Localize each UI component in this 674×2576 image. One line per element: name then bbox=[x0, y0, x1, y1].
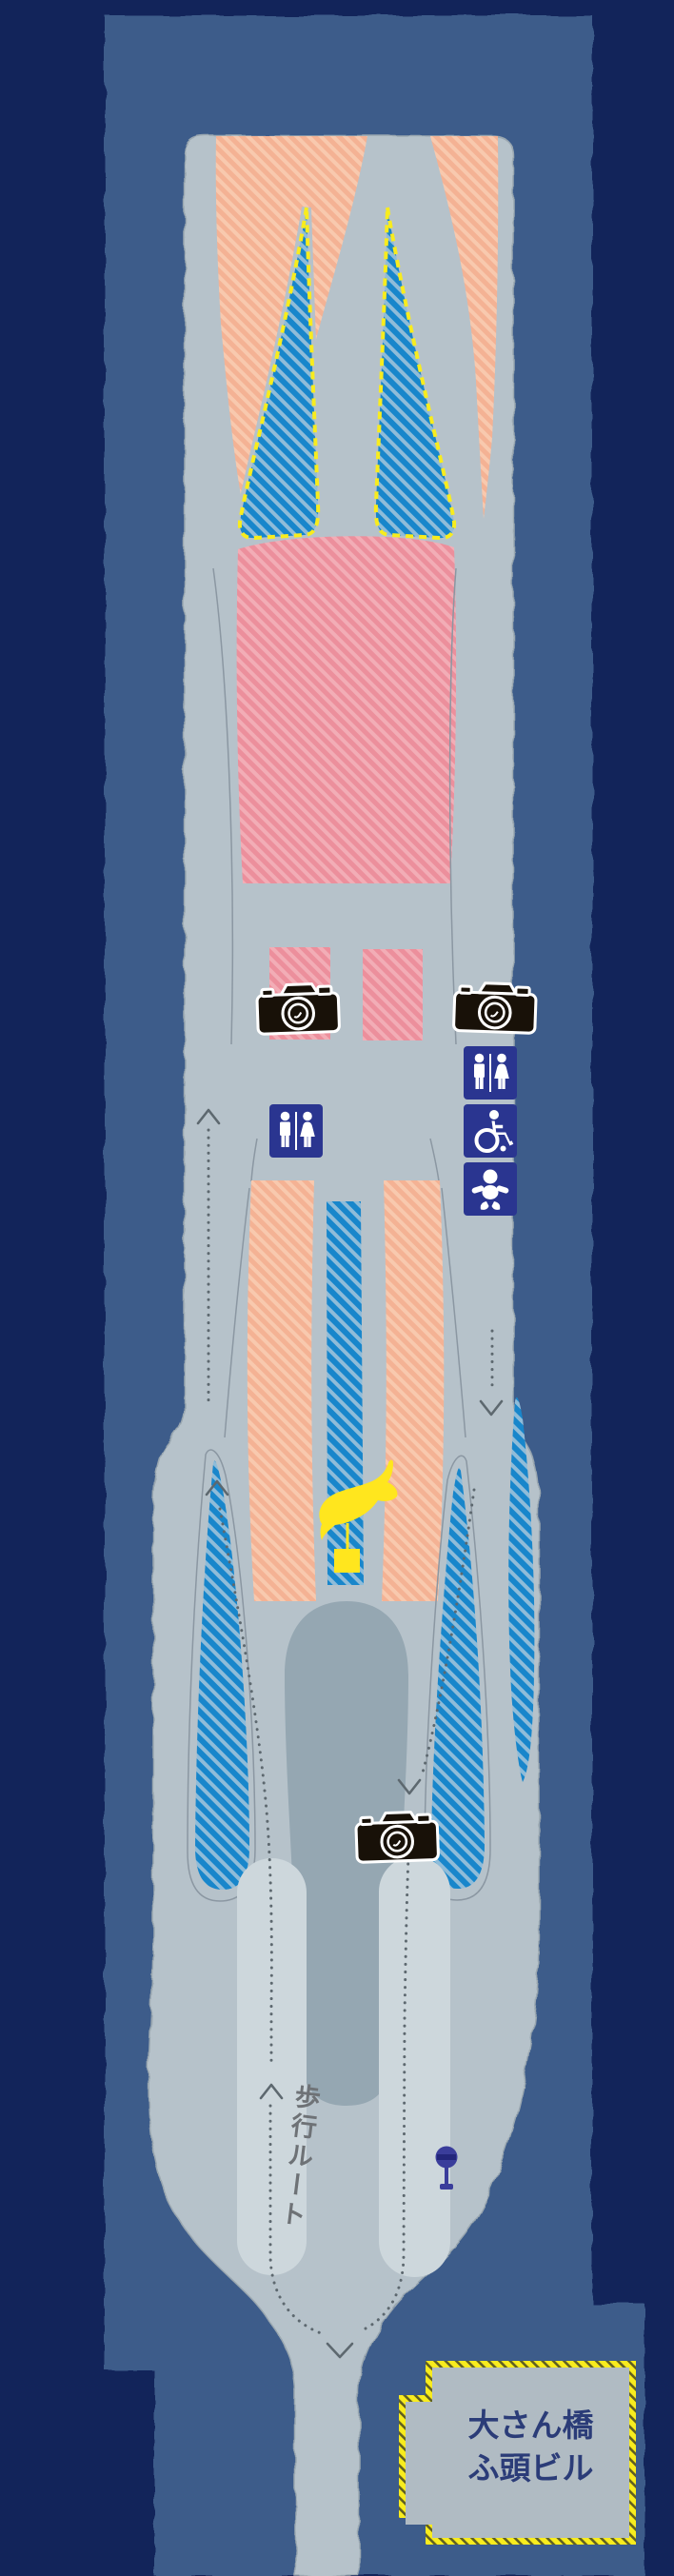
zone-pink-small-right bbox=[363, 949, 423, 1040]
pier-map: 歩行ルート 大さん橋 ふ頭ビル bbox=[0, 0, 674, 2576]
zone-orange-mid-left bbox=[248, 1180, 316, 1601]
camera-photo-spot-upper-right-icon bbox=[453, 982, 536, 1034]
zone-orange-mid-right bbox=[382, 1180, 444, 1601]
camera-photo-spot-lower-icon bbox=[356, 1812, 439, 1863]
baby-care-icon bbox=[464, 1162, 517, 1216]
restroom-sign-left-icon bbox=[269, 1104, 323, 1158]
wheelchair-accessible-icon bbox=[464, 1104, 517, 1158]
terminal-building bbox=[399, 2361, 636, 2545]
walkway-column-right bbox=[379, 1856, 450, 2277]
restroom-sign-right-icon bbox=[464, 1046, 517, 1100]
zone-pink-hall bbox=[237, 536, 456, 883]
camera-photo-spot-upper-left-icon bbox=[257, 983, 340, 1035]
